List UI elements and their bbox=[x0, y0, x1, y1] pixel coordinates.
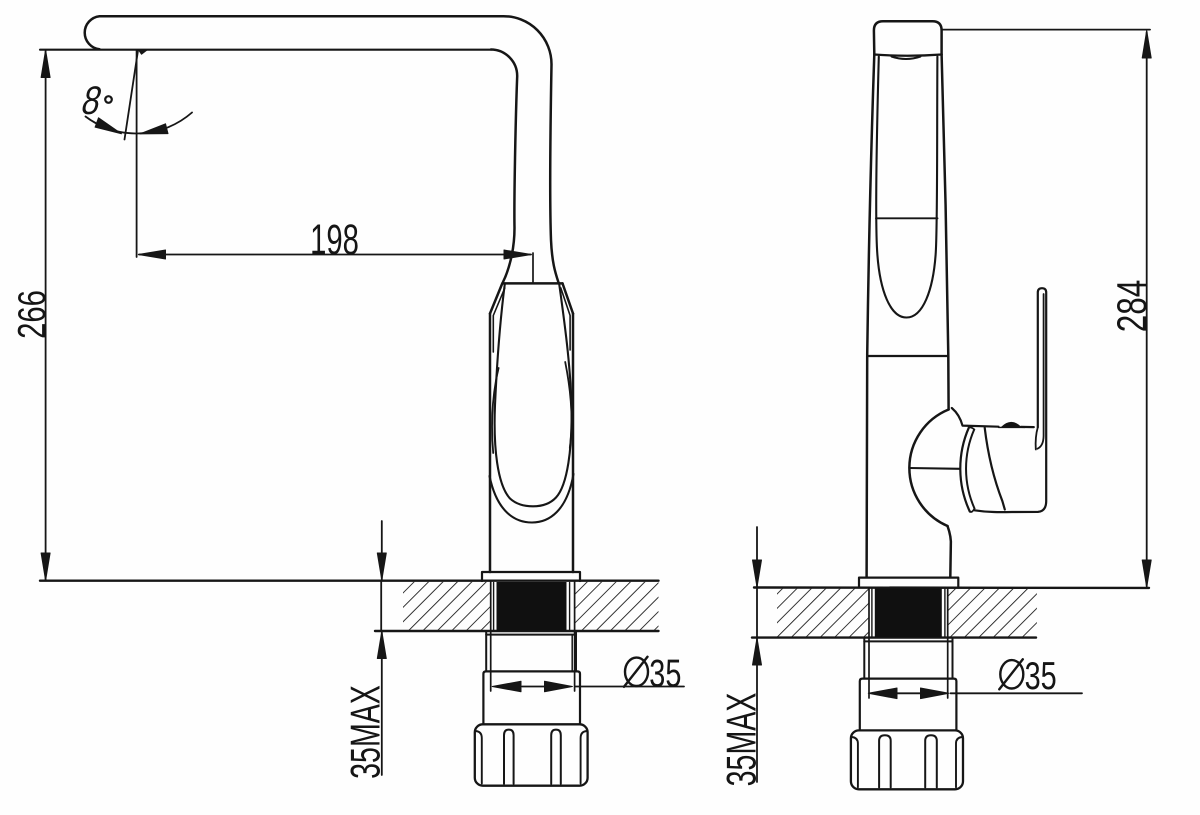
svg-text:8: 8 bbox=[77, 78, 106, 122]
svg-text:198: 198 bbox=[310, 216, 359, 264]
svg-text:35MAX: 35MAX bbox=[341, 685, 389, 779]
svg-text:35: 35 bbox=[649, 652, 681, 695]
svg-text:266: 266 bbox=[11, 290, 54, 339]
svg-text:284: 284 bbox=[1108, 280, 1156, 333]
svg-text:35MAX: 35MAX bbox=[717, 693, 765, 787]
svg-text:35: 35 bbox=[1025, 655, 1057, 698]
